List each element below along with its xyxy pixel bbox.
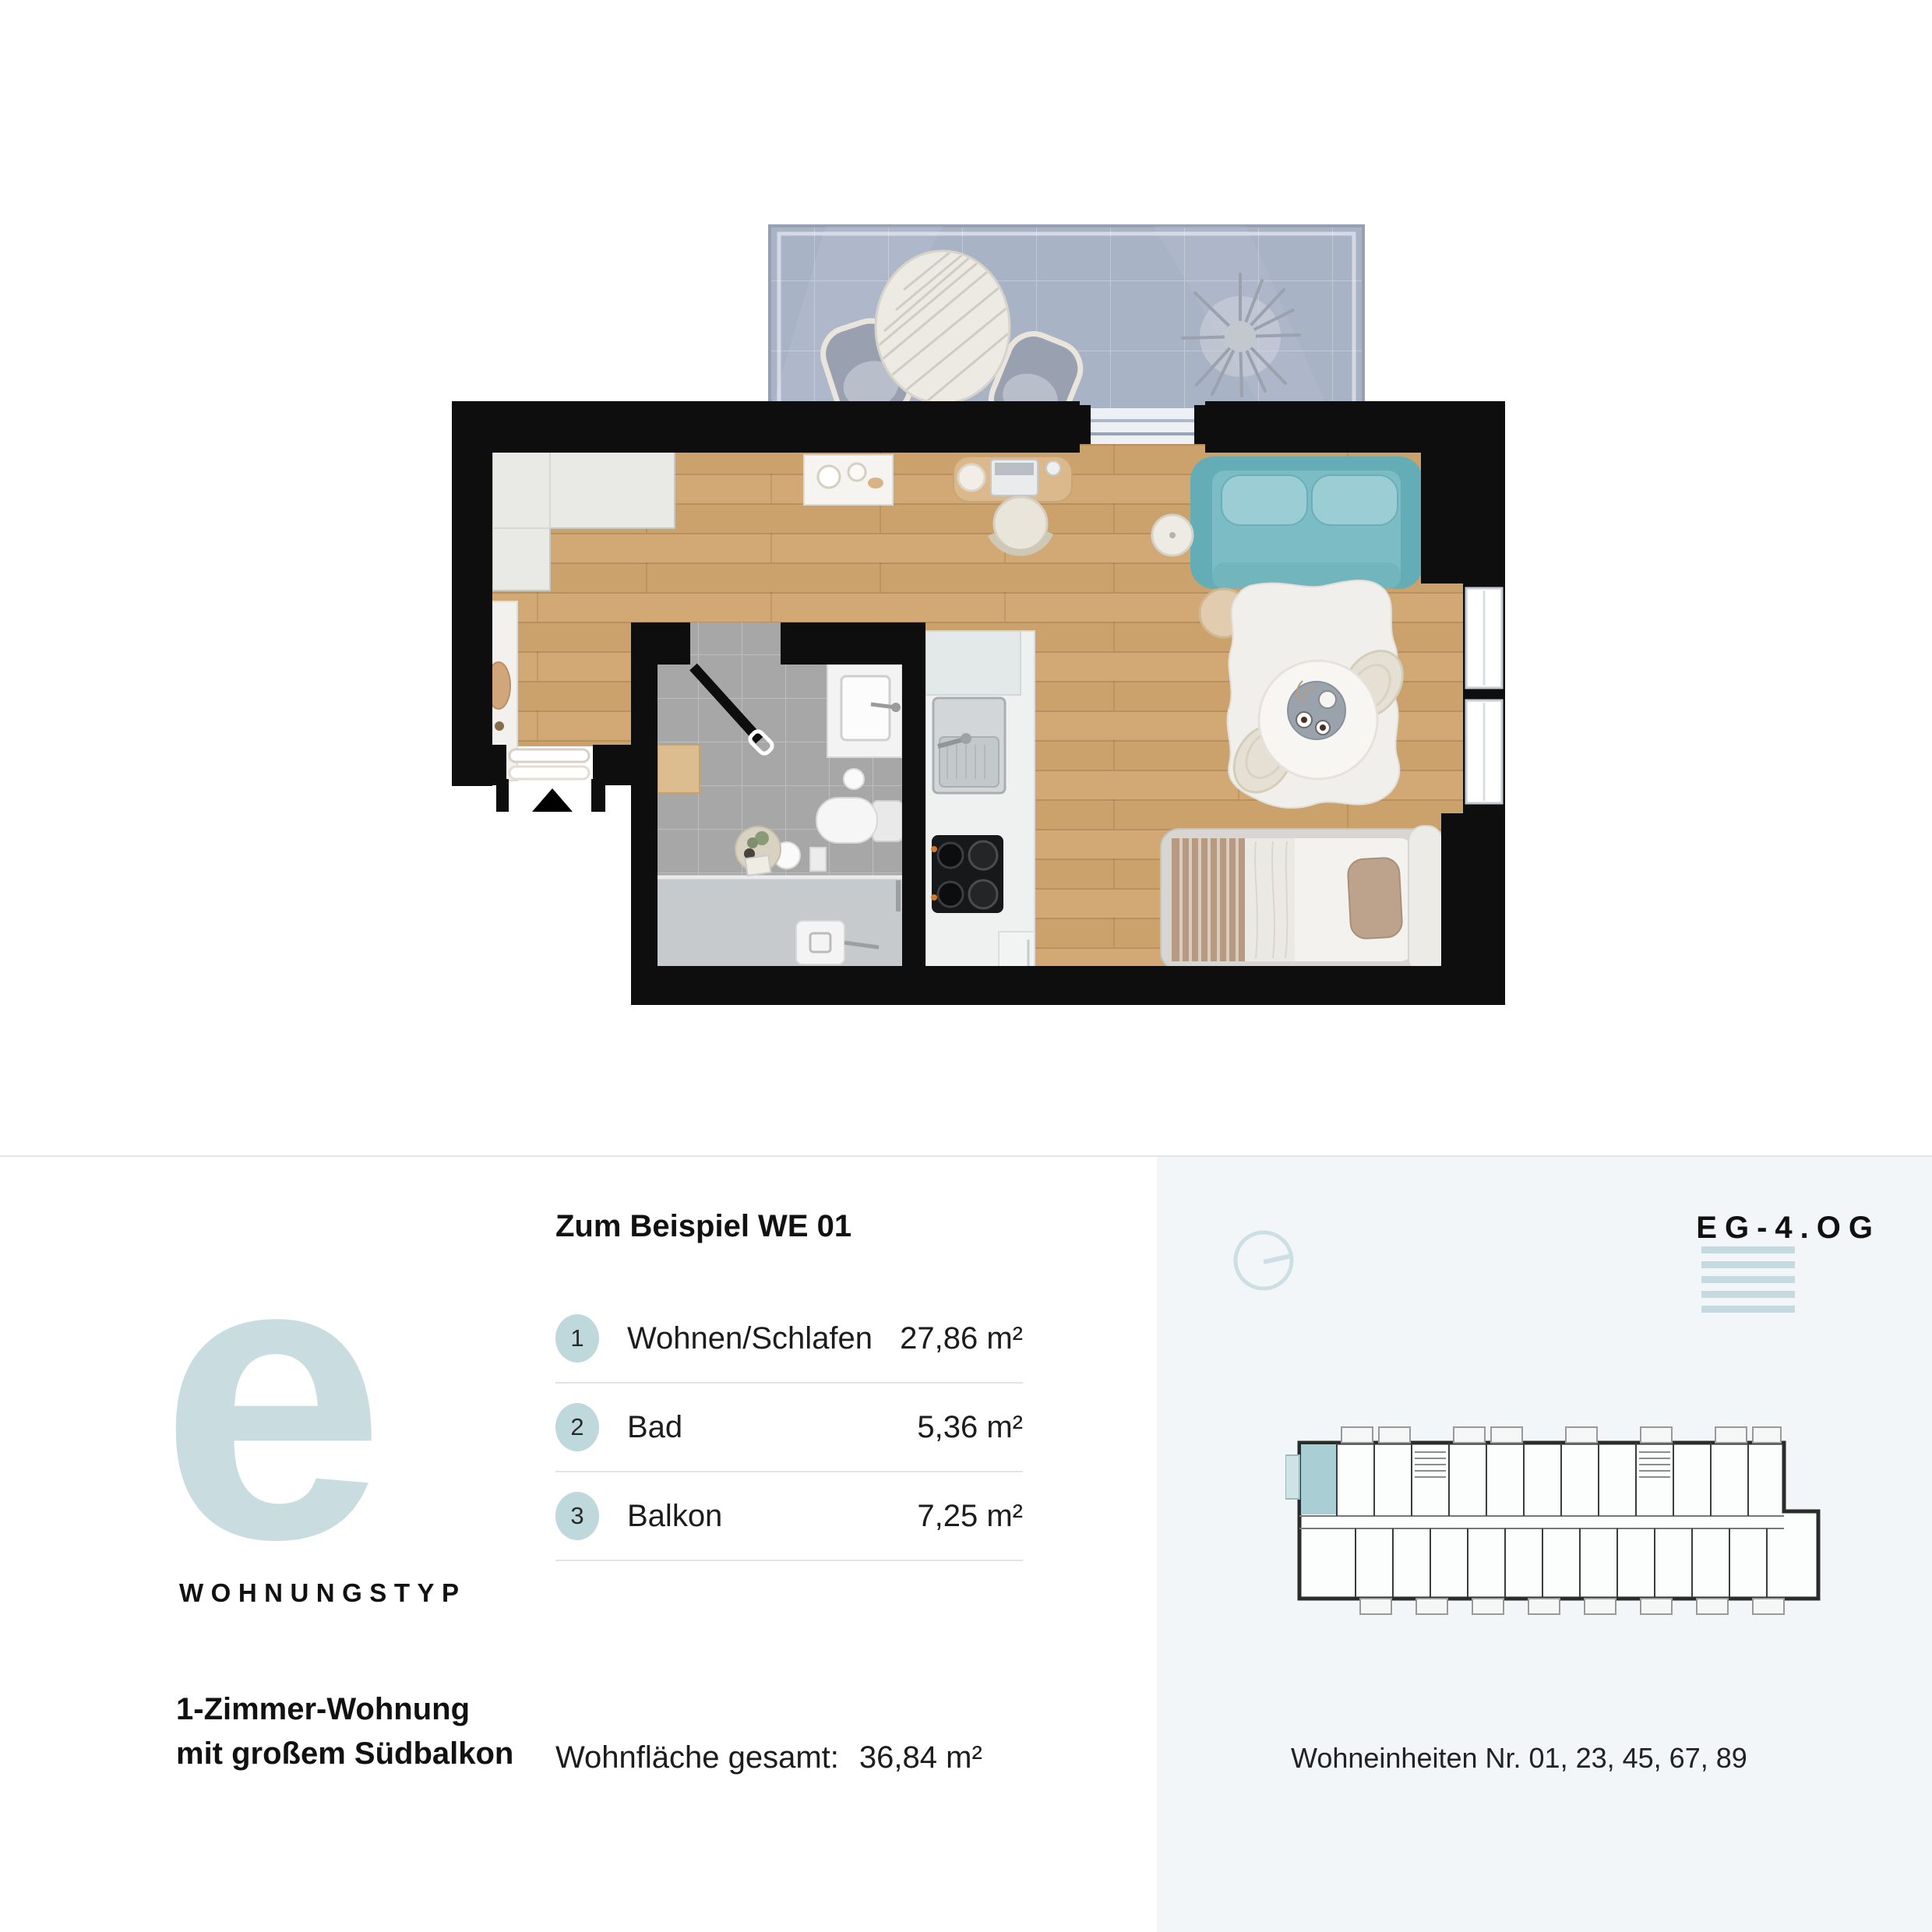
floor-plan bbox=[444, 218, 1511, 1005]
type-desc-line1: 1-Zimmer-Wohnung bbox=[176, 1687, 513, 1732]
type-desc-line2: mit großem Südbalkon bbox=[176, 1732, 513, 1776]
rooms-heading: Zum Beispiel WE 01 bbox=[555, 1209, 851, 1244]
room-badge-2: 2 bbox=[555, 1403, 599, 1451]
room-area: 5,36 m² bbox=[917, 1410, 1023, 1445]
building-overview-plan bbox=[1285, 1424, 1831, 1619]
room-row-wohnen: 1 Wohnen/Schlafen 27,86 m² bbox=[555, 1295, 1023, 1384]
room-label: Bad bbox=[627, 1410, 682, 1445]
room-area: 7,25 m² bbox=[917, 1499, 1023, 1534]
entry-arrow-icon bbox=[532, 788, 573, 812]
bed bbox=[1161, 826, 1443, 974]
room-badge-3: 3 bbox=[555, 1492, 599, 1540]
kitchen bbox=[925, 631, 1035, 991]
shower bbox=[656, 877, 902, 968]
floor-stack-icon bbox=[1701, 1246, 1795, 1320]
entry-door bbox=[509, 749, 589, 812]
apartment-type-label: WOHNUNGSTYP bbox=[179, 1578, 467, 1608]
units-label: Wohneinheiten Nr. 01, 23, 45, 67, 89 bbox=[1291, 1742, 1747, 1775]
apartment-type-letter: e bbox=[109, 1195, 436, 1600]
highlighted-unit-balcony bbox=[1285, 1455, 1299, 1499]
highlighted-unit bbox=[1301, 1444, 1337, 1514]
room-badge-1: 1 bbox=[555, 1314, 599, 1363]
vanity bbox=[827, 659, 902, 757]
total-area-value: 36,84 m² bbox=[859, 1740, 982, 1775]
room-row-balkon: 3 Balkon 7,25 m² bbox=[555, 1472, 1023, 1561]
desk-chair bbox=[991, 497, 1050, 552]
cooktop bbox=[931, 835, 1003, 913]
compass-icon bbox=[1231, 1228, 1296, 1293]
total-area-label: Wohnfläche gesamt: bbox=[555, 1740, 839, 1775]
sofa bbox=[1190, 457, 1423, 589]
room-label: Balkon bbox=[627, 1499, 722, 1534]
toilet bbox=[816, 798, 902, 843]
room-area: 27,86 m² bbox=[900, 1321, 1023, 1356]
total-area-line: Wohnfläche gesamt: 36,84 m² bbox=[555, 1740, 982, 1775]
balcony-door bbox=[1080, 405, 1205, 444]
bath-bench bbox=[658, 745, 700, 793]
floors-range-label: EG-4.OG bbox=[1696, 1211, 1881, 1246]
room-row-bad: 2 Bad 5,36 m² bbox=[555, 1384, 1023, 1472]
apartment-type-description: 1-Zimmer-Wohnung mit großem Südbalkon bbox=[176, 1687, 513, 1776]
rooms-list: 1 Wohnen/Schlafen 27,86 m² 2 Bad 5,36 m²… bbox=[555, 1295, 1023, 1561]
bathroom bbox=[656, 659, 904, 968]
kitchen-sink bbox=[933, 698, 1005, 793]
console-table bbox=[804, 455, 893, 505]
dining-table bbox=[1259, 661, 1377, 779]
room-label: Wohnen/Schlafen bbox=[627, 1321, 873, 1356]
expose-page: e WOHNUNGSTYP 1-Zimmer-Wohnung mit große… bbox=[0, 0, 1932, 1932]
